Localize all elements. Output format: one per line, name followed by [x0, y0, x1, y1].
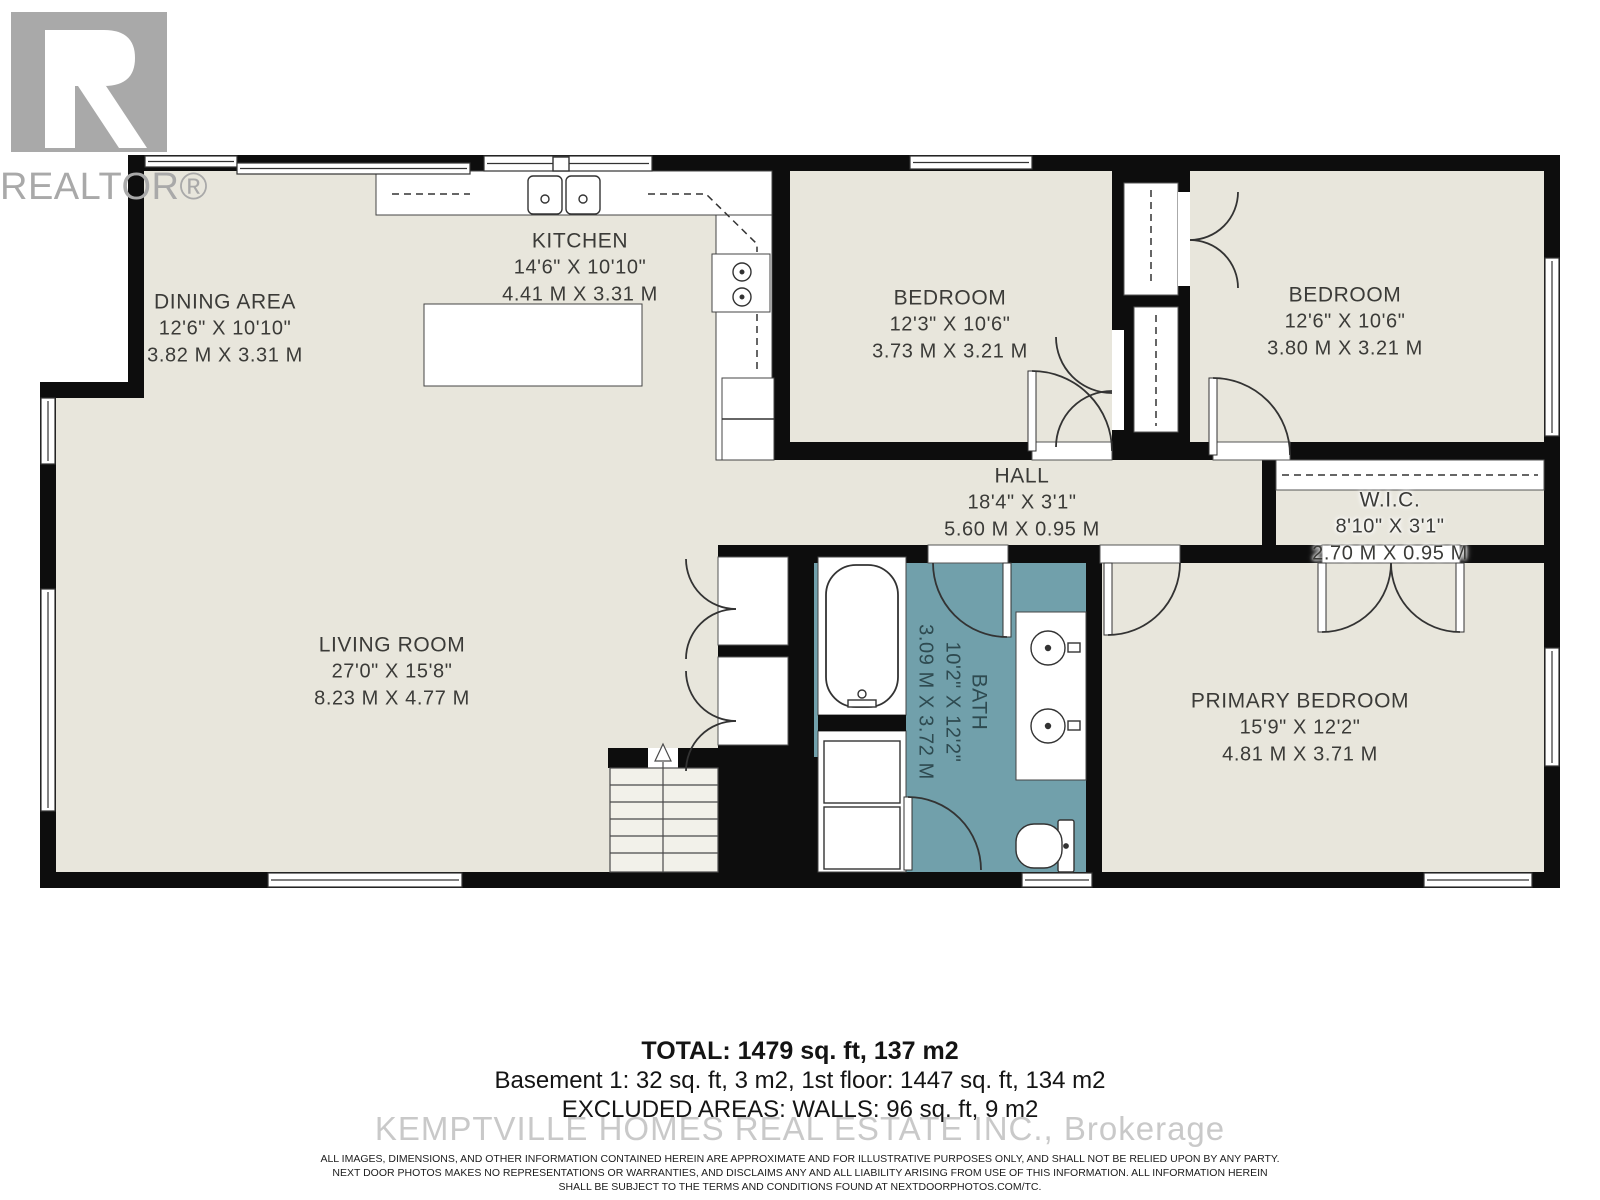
wall-hall-bottom-3: [1180, 545, 1322, 563]
door-sill-bath: [928, 545, 1008, 563]
door-slab-bath: [1003, 563, 1011, 637]
total-area-text: TOTAL: 1479 sq. ft, 137 m2: [0, 1036, 1600, 1066]
wall-hall-bottom-2: [1008, 545, 1100, 563]
window-living-south: [268, 873, 462, 887]
room-name: BEDROOM: [872, 285, 1028, 312]
room-name: HALL: [944, 463, 1100, 490]
room-label-hall: HALL 18'4" X 3'1" 5.60 M X 0.95 M: [944, 463, 1100, 544]
realtor-logo-text: REALTOR®: [0, 166, 192, 209]
room-name: KITCHEN: [502, 228, 658, 255]
room-label-kitchen: KITCHEN 14'6" X 10'10" 4.41 M X 3.31 M: [502, 228, 658, 309]
door-slab-wic-right: [1456, 563, 1464, 632]
wall-hall-bottom-4: [1460, 545, 1544, 563]
room-name: DINING AREA: [147, 289, 303, 316]
disclaimer-line-1: ALL IMAGES, DIMENSIONS, AND OTHER INFORM…: [0, 1152, 1600, 1166]
wall-bath-primary: [1086, 563, 1102, 872]
kitchen-island: [424, 304, 642, 386]
closet-living-bottom-interior: [718, 657, 788, 745]
room-dim-imperial: 27'0" X 15'8": [314, 659, 470, 686]
door-sill-primary: [1100, 545, 1180, 563]
room-dim-imperial: 15'9" X 12'2": [1191, 715, 1409, 742]
room-dim-imperial: 8'10" X 3'1": [1312, 514, 1468, 541]
room-dim-metric: 3.73 M X 3.21 M: [872, 339, 1028, 366]
window-primary-east: [1545, 648, 1559, 766]
door-slab-primary: [1104, 563, 1112, 635]
wall-hall-top-2: [1112, 442, 1213, 460]
wall-hall-top-1: [772, 442, 1032, 460]
room-dim-imperial: 12'6" X 10'6": [1267, 309, 1423, 336]
window-dining-2: [237, 163, 470, 174]
area-summary: TOTAL: 1479 sq. ft, 137 m2 Basement 1: 3…: [0, 1036, 1600, 1124]
room-dim-imperial: 12'3" X 10'6": [872, 312, 1028, 339]
room-label-dining: DINING AREA 12'6" X 10'10" 3.82 M X 3.31…: [147, 289, 303, 370]
room-dim-metric: 3.09 M X 3.72 M: [912, 624, 939, 780]
room-name: PRIMARY BEDROOM: [1191, 688, 1409, 715]
room-label-bath: BATH 10'2" X 12'2" 3.09 M X 3.72 M: [912, 624, 993, 780]
room-dim-metric: 4.41 M X 3.31 M: [502, 282, 658, 309]
room-label-living: LIVING ROOM 27'0" X 15'8" 8.23 M X 4.77 …: [314, 632, 470, 713]
window-bath-south: [1022, 873, 1092, 887]
disclaimer-line-2: NEXT DOOR PHOTOS MAKES NO REPRESENTATION…: [0, 1166, 1600, 1180]
room-name: W.I.C.: [1312, 487, 1468, 514]
door-slab-wic-left: [1318, 563, 1326, 632]
room-dim-metric: 5.60 M X 0.95 M: [944, 517, 1100, 544]
room-dim-metric: 3.82 M X 3.31 M: [147, 343, 303, 370]
closet-bedroom1-opening: [1112, 330, 1124, 430]
window-bedroom2-east: [1545, 258, 1559, 436]
window-living-west-1: [41, 398, 55, 464]
toilet: [1016, 820, 1074, 872]
closet-living-top-interior: [718, 557, 788, 645]
door-slab-bath-inner: [904, 797, 912, 870]
room-label-bedroom1: BEDROOM 12'3" X 10'6" 3.73 M X 3.21 M: [872, 285, 1028, 366]
room-label-wic: W.I.C. 8'10" X 3'1" 2.70 M X 0.95 M: [1312, 487, 1468, 568]
room-label-bedroom2: BEDROOM 12'6" X 10'6" 3.80 M X 3.21 M: [1267, 282, 1423, 363]
room-dim-imperial: 10'2" X 12'2": [939, 624, 966, 780]
wall-kitchen-bedroom: [772, 171, 790, 460]
room-name: BATH: [966, 624, 993, 780]
door-sill-bedroom2: [1213, 442, 1290, 460]
room-dim-imperial: 18'4" X 3'1": [944, 490, 1100, 517]
room-name: LIVING ROOM: [314, 632, 470, 659]
room-dim-metric: 3.80 M X 3.21 M: [1267, 336, 1423, 363]
wall-bath-left: [800, 545, 814, 888]
wall-hall-top-3: [1290, 442, 1544, 460]
window-living-west-2: [41, 589, 55, 811]
wall-under-tub: [818, 715, 906, 731]
room-dim-imperial: 12'6" X 10'10": [147, 316, 303, 343]
door-slab-bedroom1: [1028, 371, 1036, 451]
floorplan-page: REALTOR® DINING AREA 12'6" X 10'10" 3.82…: [0, 0, 1600, 1200]
room-label-primary: PRIMARY BEDROOM 15'9" X 12'2" 4.81 M X 3…: [1191, 688, 1409, 769]
excluded-areas-text: EXCLUDED AREAS: WALLS: 96 sq. ft, 9 m2: [0, 1095, 1600, 1124]
floorplan-drawing: [0, 0, 1600, 1200]
area-breakdown-text: Basement 1: 32 sq. ft, 3 m2, 1st floor: …: [0, 1066, 1600, 1095]
window-primary-south: [1424, 873, 1532, 887]
room-dim-metric: 4.81 M X 3.71 M: [1191, 742, 1409, 769]
room-name: BEDROOM: [1267, 282, 1423, 309]
disclaimer-line-3: SHALL BE SUBJECT TO THE TERMS AND CONDIT…: [0, 1180, 1600, 1194]
window-bedroom1: [910, 156, 1032, 169]
bathtub: [826, 565, 898, 707]
room-dim-imperial: 14'6" X 10'10": [502, 255, 658, 282]
door-sill-bedroom1: [1032, 442, 1112, 460]
realtor-logo-icon: [11, 12, 167, 152]
room-dim-metric: 2.70 M X 0.95 M: [1312, 541, 1468, 568]
door-slab-bedroom2: [1209, 378, 1217, 455]
faucet: [553, 157, 569, 171]
disclaimer-text: ALL IMAGES, DIMENSIONS, AND OTHER INFORM…: [0, 1152, 1600, 1194]
closet-bedroom2-opening: [1178, 192, 1190, 286]
room-dim-metric: 8.23 M X 4.77 M: [314, 686, 470, 713]
